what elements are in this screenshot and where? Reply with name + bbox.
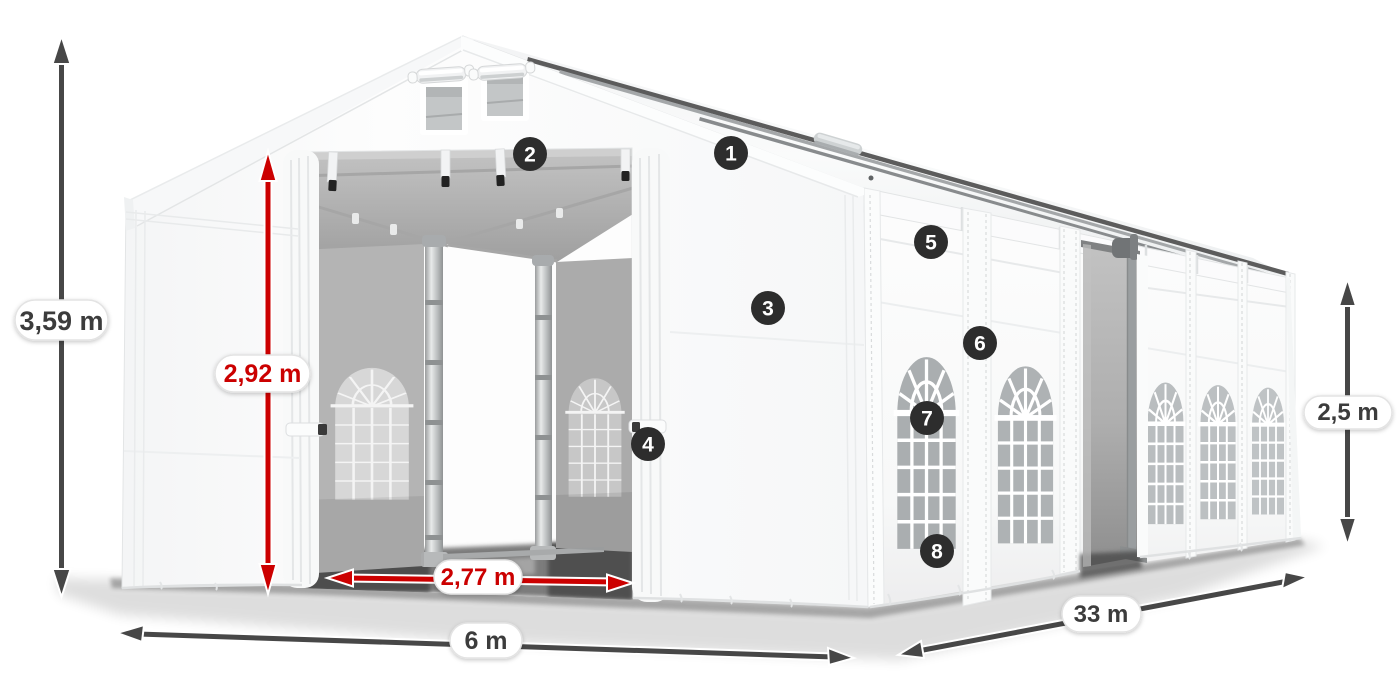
svg-text:4: 4 [642, 434, 654, 457]
svg-text:1: 1 [725, 143, 737, 166]
svg-text:3,59 m: 3,59 m [19, 306, 103, 336]
svg-text:7: 7 [921, 408, 933, 431]
svg-text:6: 6 [974, 333, 986, 356]
svg-text:6 m: 6 m [464, 627, 507, 655]
svg-text:5: 5 [925, 232, 937, 255]
svg-text:2,5 m: 2,5 m [1317, 399, 1378, 426]
svg-text:2: 2 [524, 144, 536, 167]
svg-text:2,77 m: 2,77 m [441, 564, 516, 591]
svg-text:3: 3 [762, 298, 774, 321]
svg-text:33 m: 33 m [1074, 601, 1129, 628]
svg-text:2,92 m: 2,92 m [224, 360, 302, 388]
svg-text:8: 8 [931, 541, 943, 564]
